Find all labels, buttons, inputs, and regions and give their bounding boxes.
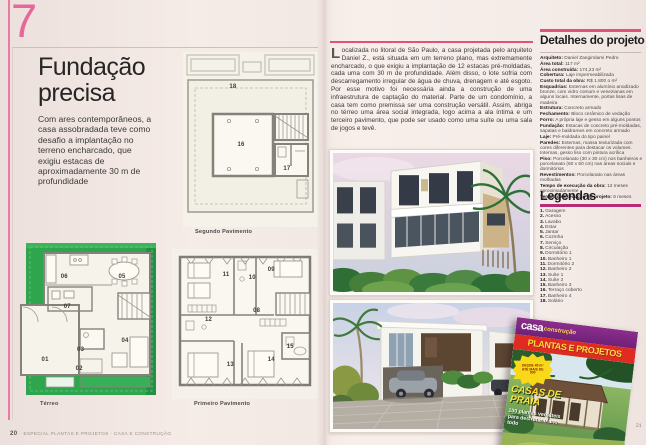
- detail-label: Custo total da obra:: [540, 79, 585, 84]
- legend-label: Lavabo: [545, 220, 561, 225]
- article-box-rule-left: [12, 47, 13, 419]
- legend-label: Acesso: [545, 214, 561, 219]
- legend-number: 10.: [540, 257, 547, 262]
- detail-item: Esquadrias: Externas em alumínio anodiza…: [540, 85, 644, 106]
- detail-label: Laje:: [540, 135, 551, 140]
- detail-item: Estrutura: Concreto armado: [540, 106, 644, 111]
- plan-label-primeiro: Primeiro Pavimento: [194, 401, 250, 407]
- legend-list: 1.Garagem 2.Acesso 3.Lavabo 4.Estar 5.Ja…: [540, 209, 640, 304]
- room-number: 09: [268, 267, 275, 273]
- detail-label: Fechamento:: [540, 112, 570, 117]
- detail-item: Paredes: Externas, massa texturizada com…: [540, 141, 644, 157]
- room-number: 11: [223, 272, 230, 278]
- detail-item: Arquiteto: Daniel Zangirolami Pedro: [540, 56, 644, 61]
- left-footer-text: ESPECIAL PLANTAS E PROJETOS · CASA E CON…: [23, 431, 171, 436]
- detail-value: Porcelanato (30 x 30 cm) nos banheiros e…: [540, 157, 642, 172]
- details-sub-rule: [540, 52, 641, 53]
- detail-value: Bloco cerâmico de vedação: [571, 112, 630, 117]
- room-number: 14: [268, 357, 275, 363]
- render-house-garden-view: [329, 149, 534, 296]
- detail-label: Área total:: [540, 62, 564, 67]
- legend-number: 17.: [540, 294, 547, 299]
- detail-value: Pré-moldada do tipo painel: [553, 135, 610, 140]
- detail-item: Área total: 117 m²: [540, 62, 644, 67]
- room-number: 18: [229, 84, 236, 90]
- room-number: 15: [287, 344, 294, 350]
- room-number: 05: [118, 274, 125, 280]
- legend-number: 12.: [540, 267, 547, 272]
- article-body: Localizada no litoral de São Paulo, a ca…: [331, 47, 532, 133]
- detail-item: Laje: Pré-moldada do tipo painel: [540, 135, 644, 140]
- render-street-view: [329, 299, 534, 433]
- legend-rule: [540, 204, 641, 207]
- plan-label-terreo: Térreo: [40, 401, 59, 407]
- plan-label-segundo: Segundo Pavimento: [195, 229, 252, 235]
- cover-starburst-text: DESDE 45 m² ATÉ MAIS DE 900: [520, 364, 546, 375]
- article-title: Fundação precisa: [38, 54, 178, 106]
- floor-plan-segundo-pavimento: 181617: [183, 52, 318, 227]
- legend-heading: Legendas: [540, 189, 646, 203]
- room-number: 03: [77, 347, 84, 353]
- legend-label: Dormitório 1: [545, 251, 572, 256]
- left-accent-line: [8, 0, 10, 420]
- room-number: 12: [205, 317, 212, 323]
- article-lede: Com ares contemporâneos, a casa assobrad…: [38, 114, 152, 187]
- article-box-rule-top: [12, 47, 318, 48]
- legend-label: Suíte 1: [548, 273, 564, 278]
- detail-item: Fundação: Estacas de concreto pré-moldad…: [540, 124, 644, 134]
- floor-plan-primeiro-pavimento: 1110090812131415: [172, 249, 318, 399]
- room-number: 13: [227, 362, 234, 368]
- detail-label: Estrutura:: [540, 106, 563, 111]
- cover-brand-construcao: construção: [544, 326, 577, 336]
- detail-item: Piso: Porcelanato (30 x 30 cm) nos banhe…: [540, 157, 644, 173]
- legend-number: 9.: [540, 251, 544, 256]
- details-heading: Detalhes do projeto: [540, 33, 646, 47]
- detail-label: Cobertura:: [540, 73, 565, 78]
- legend-number: 2.: [540, 214, 544, 219]
- legend-label: Banheiro 1: [548, 257, 572, 262]
- legend-number: 18.: [540, 299, 547, 304]
- project-number: 7: [11, 0, 37, 46]
- magazine-spread: 7 Fundação precisa Com ares contemporâne…: [0, 0, 646, 445]
- detail-value: Daniel Zangirolami Pedro: [564, 56, 618, 61]
- legend-label: Cozinha: [545, 235, 563, 240]
- legend-label: Banheiro 2: [548, 267, 572, 272]
- room-number: 02: [76, 366, 83, 372]
- legend-number: 6.: [540, 235, 544, 240]
- legend-item: 18.Solário: [540, 299, 640, 304]
- left-page-footer: 20ESPECIAL PLANTAS E PROJETOS · CASA E C…: [10, 431, 171, 437]
- detail-item: Revestimentos: Porcelanato nas áreas mol…: [540, 173, 644, 183]
- detail-label: Arquiteto:: [540, 56, 563, 61]
- room-number: 06: [61, 274, 68, 280]
- detail-value: Concreto armado: [564, 106, 601, 111]
- legend-number: 16.: [540, 288, 547, 293]
- detail-label: Forro:: [540, 118, 554, 123]
- magazine-cover: casa construção PLANTAS E PROJETOS: [496, 317, 638, 445]
- article-body-text: ocalizada no litoral de São Paulo, a cas…: [331, 47, 532, 132]
- body-top-rule: [330, 41, 533, 43]
- room-number: 16: [238, 142, 245, 148]
- cover-brand-casa: casa: [520, 321, 543, 335]
- left-folio: 20: [10, 431, 17, 437]
- detail-item: Cobertura: Laje impermeabilizada: [540, 73, 644, 78]
- right-folio: 21: [636, 423, 642, 429]
- legend-number: 13.: [540, 273, 547, 278]
- details-top-rule: [540, 29, 641, 32]
- cover-photo: DESDE 45 m² ATÉ MAIS DE 900 CASAS DE PRA…: [496, 349, 634, 445]
- floor-plan-terreo: 06050701030204: [14, 241, 162, 397]
- detail-value: 174,23 m²: [579, 68, 601, 73]
- legend-label: Solário: [548, 299, 563, 304]
- room-number: 17: [283, 166, 290, 172]
- detail-item: Forro: A própria laje e gesso em alguns …: [540, 118, 644, 123]
- detail-value: R$ 1.800 o m²: [587, 79, 617, 84]
- room-number: 01: [42, 357, 49, 363]
- room-number: 04: [121, 338, 128, 344]
- legend-label: Banheiro 4: [548, 294, 572, 299]
- detail-value: A própria laje e gesso em alguns pontos: [555, 118, 640, 123]
- drop-cap: L: [331, 47, 340, 61]
- detail-item: Custo total da obra: R$ 1.800 o m²: [540, 79, 644, 84]
- room-number: 10: [249, 275, 256, 281]
- detail-item: Fechamento: Bloco cerâmico de vedação: [540, 112, 644, 117]
- detail-value: Laje impermeabilizada: [566, 73, 614, 78]
- room-number: 08: [253, 308, 260, 314]
- detail-label: Área construída:: [540, 68, 578, 73]
- details-list: Arquiteto: Daniel Zangirolami Pedro Área…: [540, 56, 644, 201]
- detail-value: 117 m²: [565, 62, 580, 67]
- legend-number: 3.: [540, 220, 544, 225]
- legend-label: Terraço coberto: [548, 288, 582, 293]
- room-number: 07: [64, 304, 71, 310]
